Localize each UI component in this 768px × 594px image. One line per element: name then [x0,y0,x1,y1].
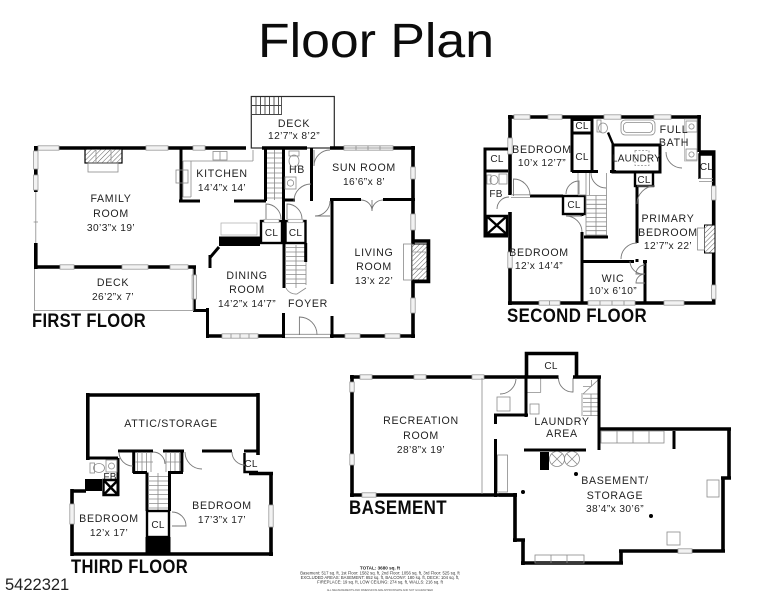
svg-text:14’2”x 14’7”: 14’2”x 14’7” [218,299,276,310]
svg-text:FOYER: FOYER [288,298,328,310]
svg-text:12’7”x 22’: 12’7”x 22’ [644,241,692,252]
svg-text:16’6”x 8’: 16’6”x 8’ [343,177,385,188]
svg-text:28’8”x 19’: 28’8”x 19’ [397,445,445,456]
svg-text:CL: CL [289,228,302,239]
svg-text:LAUNDRY: LAUNDRY [534,416,589,428]
svg-text:DINING: DINING [226,270,267,282]
svg-text:10’x 6’10”: 10’x 6’10” [589,286,637,297]
svg-text:BEDROOM: BEDROOM [192,500,252,512]
svg-text:BASEMENT/: BASEMENT/ [581,475,649,487]
svg-text:30’3”x 19’: 30’3”x 19’ [87,223,135,234]
svg-text:14’4”x 14’: 14’4”x 14’ [198,183,246,194]
svg-text:CL: CL [575,121,588,132]
svg-text:FIREPLACE: 19 sq. ft, LOW CEIL: FIREPLACE: 19 sq. ft, LOW CEILING: 274 s… [317,580,444,585]
svg-text:12’x 14’4”: 12’x 14’4” [515,261,563,272]
svg-text:LIVING: LIVING [355,247,394,259]
svg-text:LAUNDRY: LAUNDRY [612,154,661,165]
svg-text:38’4”x 30’6”: 38’4”x 30’6” [586,504,644,515]
svg-text:WIC: WIC [602,273,625,285]
svg-text:SUN ROOM: SUN ROOM [332,162,396,174]
svg-text:CL: CL [265,228,278,239]
svg-text:10’x 12’7”: 10’x 12’7” [518,158,566,169]
svg-text:BEDROOM: BEDROOM [638,227,698,239]
svg-text:SECOND FLOOR: SECOND FLOOR [507,306,647,327]
svg-text:17’3”x 17’: 17’3”x 17’ [198,515,246,526]
svg-text:CL: CL [637,175,650,186]
svg-text:THIRD FLOOR: THIRD FLOOR [71,557,188,578]
svg-text:KITCHEN: KITCHEN [196,168,247,180]
svg-text:DECK: DECK [97,277,129,289]
svg-text:ALL MEASUREMENTS AND DIMENSION: ALL MEASUREMENTS AND DIMENSIONS ARE APPR… [327,588,433,592]
svg-text:BATH: BATH [659,137,689,149]
svg-text:ROOM: ROOM [403,430,439,442]
svg-text:DECK: DECK [278,118,310,130]
svg-text:CL: CL [244,459,257,470]
svg-text:BEDROOM: BEDROOM [512,144,572,156]
svg-text:CL: CL [544,361,557,372]
svg-text:AREA: AREA [546,428,578,440]
svg-text:BEDROOM: BEDROOM [509,247,569,259]
svg-text:STORAGE: STORAGE [587,490,644,502]
svg-text:12’x 17’: 12’x 17’ [90,528,128,539]
svg-text:FAMILY: FAMILY [90,193,131,205]
svg-text:13’x 22’: 13’x 22’ [355,276,393,287]
svg-text:CL: CL [700,162,713,173]
svg-text:PRIMARY: PRIMARY [642,213,695,225]
svg-text:BEDROOM: BEDROOM [79,513,139,525]
svg-text:HB: HB [289,164,305,176]
svg-text:Floor Plan: Floor Plan [258,15,494,68]
svg-text:CL: CL [567,200,580,211]
svg-text:BASEMENT: BASEMENT [349,498,447,519]
svg-text:26’2”x 7’: 26’2”x 7’ [92,292,134,303]
svg-text:RECREATION: RECREATION [383,415,459,427]
svg-text:CL: CL [151,520,164,531]
svg-text:ROOM: ROOM [356,261,392,273]
svg-text:CL: CL [490,154,503,165]
svg-text:FULL: FULL [660,124,689,136]
svg-text:5422321: 5422321 [5,576,69,594]
svg-text:FIRST FLOOR: FIRST FLOOR [32,311,146,332]
svg-text:12’7”x 8’2”: 12’7”x 8’2” [268,131,320,142]
svg-text:ATTIC/STORAGE: ATTIC/STORAGE [124,418,217,430]
svg-text:CL: CL [575,152,588,163]
svg-text:FB: FB [489,189,502,200]
svg-text:ROOM: ROOM [229,284,265,296]
svg-text:ROOM: ROOM [93,208,129,220]
